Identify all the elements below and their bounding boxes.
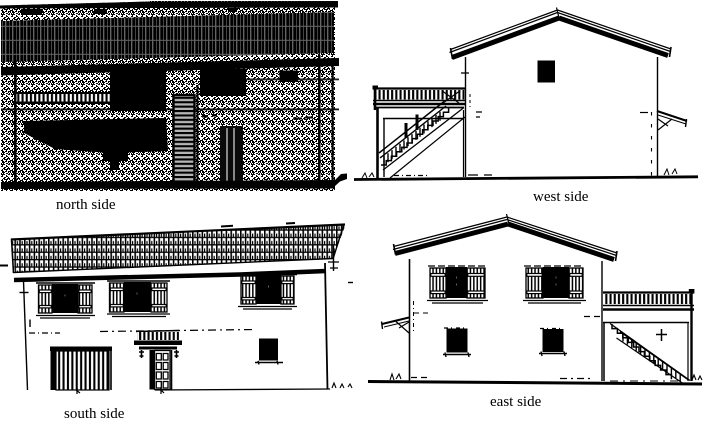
svg-text:north side: north side — [56, 197, 116, 213]
svg-text:east side: east side — [490, 394, 542, 410]
svg-text:south side: south side — [64, 406, 125, 422]
svg-text:west side: west side — [533, 189, 589, 205]
